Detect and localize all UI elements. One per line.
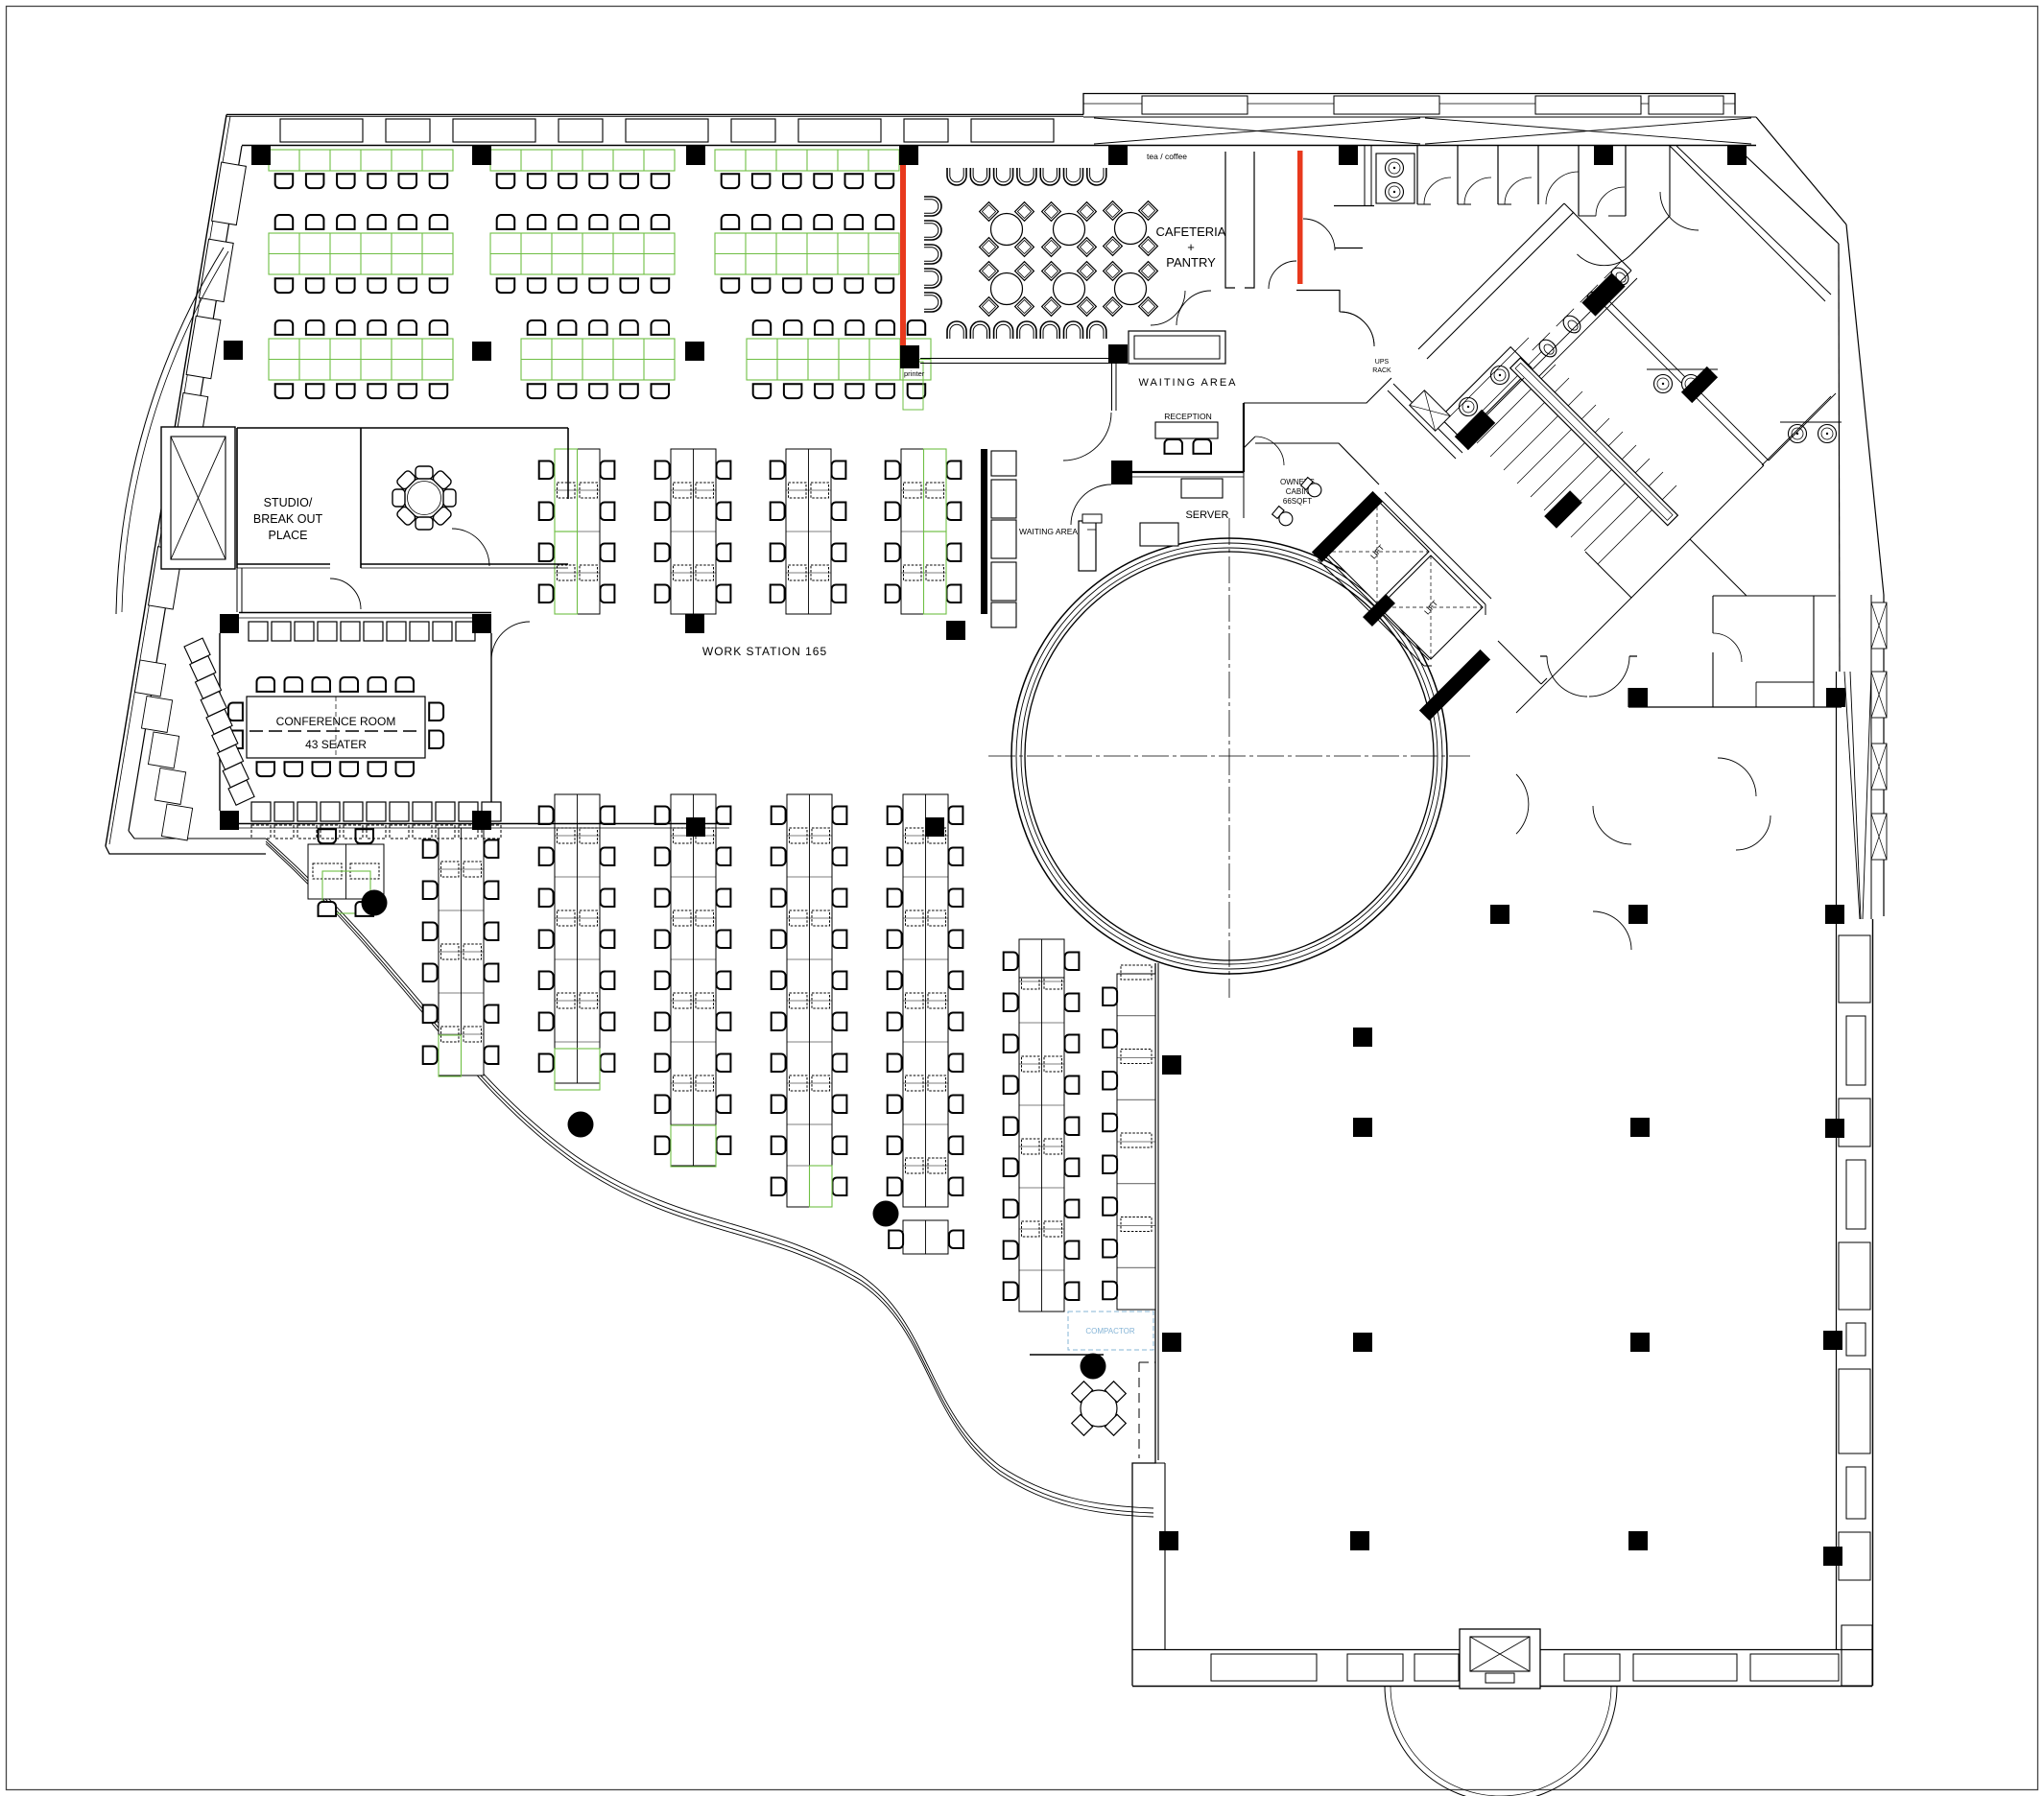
svg-text:WORK STATION 165: WORK STATION 165 xyxy=(702,645,827,658)
svg-text:WAITING AREA: WAITING AREA xyxy=(1019,527,1078,536)
svg-text:printer: printer xyxy=(904,369,925,378)
svg-text:+: + xyxy=(1187,240,1195,254)
svg-text:CONFERENCE ROOM: CONFERENCE ROOM xyxy=(276,715,396,728)
svg-text:tea / coffee: tea / coffee xyxy=(1147,152,1187,161)
svg-text:PLACE: PLACE xyxy=(269,529,308,542)
svg-text:RECEPTION: RECEPTION xyxy=(1164,412,1212,421)
svg-text:CAFETERIA: CAFETERIA xyxy=(1156,224,1226,239)
svg-text:RACK: RACK xyxy=(1372,367,1391,374)
svg-text:SERVER: SERVER xyxy=(1185,509,1228,521)
svg-text:43 SEATER: 43 SEATER xyxy=(305,738,367,751)
svg-text:COMPACTOR: COMPACTOR xyxy=(1085,1327,1134,1335)
svg-text:UPS: UPS xyxy=(1375,359,1390,366)
svg-text:STUDIO/: STUDIO/ xyxy=(264,496,313,509)
svg-text:BREAK OUT: BREAK OUT xyxy=(253,512,323,526)
svg-text:PANTRY: PANTRY xyxy=(1166,255,1216,270)
svg-text:66SQFT: 66SQFT xyxy=(1283,497,1312,506)
svg-text:WAITING AREA: WAITING AREA xyxy=(1138,377,1237,389)
